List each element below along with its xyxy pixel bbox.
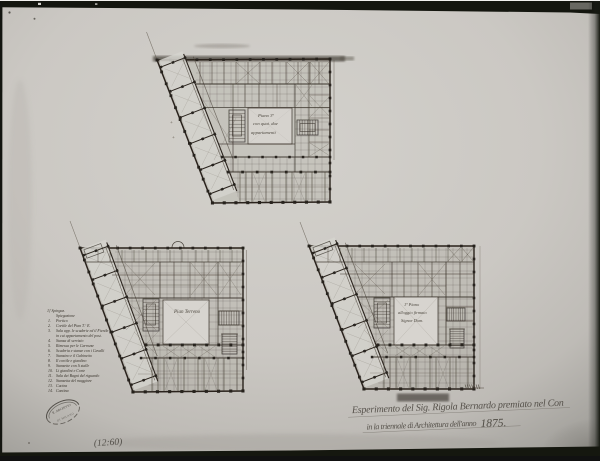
- svg-text:4.: 4.: [48, 339, 51, 343]
- svg-text:Rimessa per le Carrozze: Rimessa per le Carrozze: [55, 344, 94, 348]
- svg-text:3.: 3.: [48, 329, 51, 333]
- svg-text:2.: 2.: [48, 324, 51, 328]
- svg-text:Stanzetta del maggiore: Stanzetta del maggiore: [56, 379, 92, 383]
- svg-text:1] Spiegaz.: 1] Spiegaz.: [47, 308, 65, 313]
- svg-text:5.: 5.: [48, 344, 51, 348]
- svg-text:(12:60): (12:60): [94, 437, 123, 449]
- svg-text:Cortile del Pian T.º E.: Cortile del Pian T.º E.: [56, 324, 90, 328]
- svg-text:Signor Dom.: Signor Dom.: [401, 318, 423, 323]
- svg-text:Stanzino e il Gabinetto: Stanzino e il Gabinetto: [56, 354, 92, 358]
- svg-text:6.: 6.: [48, 349, 51, 353]
- svg-text:1º Piano: 1º Piano: [404, 302, 420, 307]
- svg-text:13.: 13.: [48, 384, 53, 388]
- svg-text:1.: 1.: [48, 319, 51, 323]
- svg-text:10.: 10.: [48, 369, 53, 373]
- svg-text:Sala dei Bagni del riguardo: Sala dei Bagni del riguardo: [56, 374, 99, 378]
- svg-text:alloggio firmato: alloggio firmato: [398, 310, 427, 315]
- svg-text:Sala app. le scuderie ed il Fi: Sala app. le scuderie ed il Fienile: [56, 329, 109, 333]
- svg-text:+: +: [170, 121, 173, 126]
- svg-text:Piano 3º: Piano 3º: [257, 113, 274, 118]
- svg-text:Pian Terreno: Pian Terreno: [173, 310, 201, 315]
- svg-text:Cucina: Cucina: [56, 384, 67, 388]
- svg-text:7.: 7.: [48, 354, 51, 358]
- svg-text:9.: 9.: [48, 364, 51, 368]
- svg-text:in cui appartamento del post.: in cui appartamento del post.: [56, 334, 102, 338]
- svg-text:Portico: Portico: [55, 319, 68, 323]
- svg-text:Stanza di servizio: Stanza di servizio: [56, 339, 84, 343]
- svg-text:Cantina: Cantina: [56, 389, 69, 393]
- svg-text:Il cortile e giardino: Il cortile e giardino: [55, 359, 86, 363]
- svg-text:Li giardini e Corte: Li giardini e Corte: [55, 369, 85, 373]
- svg-text:Scuderia e stanze con i Cavall: Scuderia e stanze con i Cavalli: [56, 349, 104, 353]
- svg-text:Spiegazione: Spiegazione: [56, 314, 75, 318]
- svg-text:12.: 12.: [48, 379, 53, 383]
- svg-text:8.: 8.: [48, 359, 51, 363]
- svg-text:con quat. due: con quat. due: [253, 121, 278, 126]
- svg-text:14.: 14.: [48, 389, 53, 393]
- svg-text:11.: 11.: [48, 374, 53, 378]
- svg-text:appartamenti: appartamenti: [251, 130, 276, 135]
- svg-text:Stanzette con li stalle: Stanzette con li stalle: [56, 364, 89, 368]
- svg-text:+: +: [172, 136, 175, 141]
